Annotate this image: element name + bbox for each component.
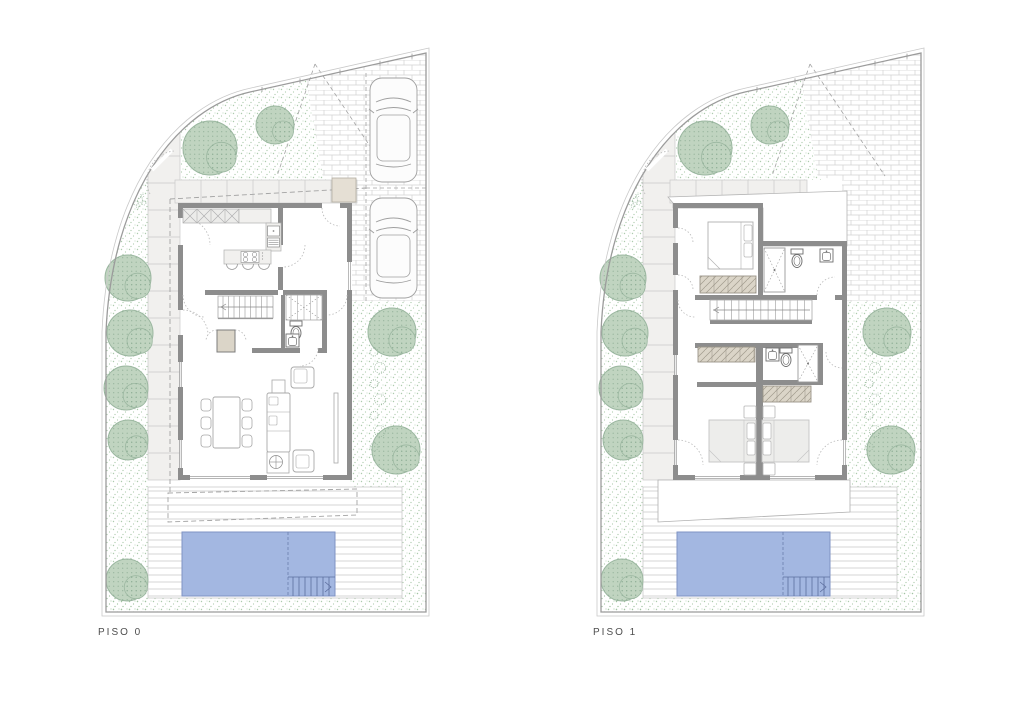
hall-closet	[217, 330, 235, 352]
floor-plan-piso-1	[597, 48, 924, 616]
bed	[708, 222, 753, 269]
wardrobe	[700, 276, 756, 293]
tree	[602, 310, 648, 356]
toilet	[791, 249, 803, 268]
floor-label-piso-0: PISO 0	[98, 627, 142, 638]
upper-stair-flight	[286, 295, 322, 320]
tv-console	[334, 393, 338, 463]
tree	[867, 426, 915, 474]
tree	[751, 106, 789, 144]
car	[369, 198, 418, 298]
nightstand	[763, 463, 775, 475]
shower	[764, 248, 785, 292]
architectural-sheet: PISO 0 PISO 1	[0, 0, 1024, 724]
tree	[183, 121, 237, 175]
tree	[372, 426, 420, 474]
staircase	[710, 300, 812, 320]
tree	[107, 310, 153, 356]
tree	[256, 106, 294, 144]
tree	[599, 366, 643, 410]
cooktop	[241, 252, 259, 263]
tree	[106, 559, 148, 601]
wardrobe	[763, 386, 811, 402]
armchair	[291, 367, 314, 388]
tree	[104, 366, 148, 410]
tree	[678, 121, 732, 175]
swimming-pool	[182, 532, 335, 596]
tree	[603, 420, 643, 460]
floor-plan-piso-0	[102, 48, 429, 616]
toilet	[780, 348, 792, 367]
swimming-pool	[677, 532, 830, 596]
sink	[286, 334, 299, 347]
nightstand	[763, 406, 775, 418]
paver-strip	[175, 180, 357, 203]
dining-chair	[242, 435, 252, 447]
dining-chair	[201, 417, 211, 429]
floor-lamp	[267, 452, 289, 473]
dining-chair	[242, 417, 252, 429]
site-plan-drawing	[0, 0, 1024, 724]
dining-area	[201, 397, 252, 448]
coffee-table	[272, 380, 285, 394]
bed	[762, 420, 809, 462]
nightstand	[744, 463, 756, 475]
tree	[601, 559, 643, 601]
sink	[766, 348, 779, 361]
dining-chair	[201, 435, 211, 447]
tree	[863, 308, 911, 356]
wardrobe	[698, 347, 755, 362]
kitchen-island	[224, 250, 271, 264]
dining-chair	[201, 399, 211, 411]
floor-label-piso-1: PISO 1	[593, 627, 637, 638]
kitchen-cabinets	[183, 209, 239, 223]
tree	[368, 308, 416, 356]
entry-porch	[332, 178, 356, 202]
staircase	[218, 296, 273, 319]
bed	[709, 420, 756, 462]
dining-chair	[242, 399, 252, 411]
sink	[820, 249, 833, 262]
dining-table	[213, 397, 240, 448]
tree	[108, 420, 148, 460]
armchair	[293, 450, 314, 472]
sofa	[267, 393, 290, 452]
shower	[798, 345, 818, 382]
nightstand	[744, 406, 756, 418]
car	[369, 78, 418, 182]
